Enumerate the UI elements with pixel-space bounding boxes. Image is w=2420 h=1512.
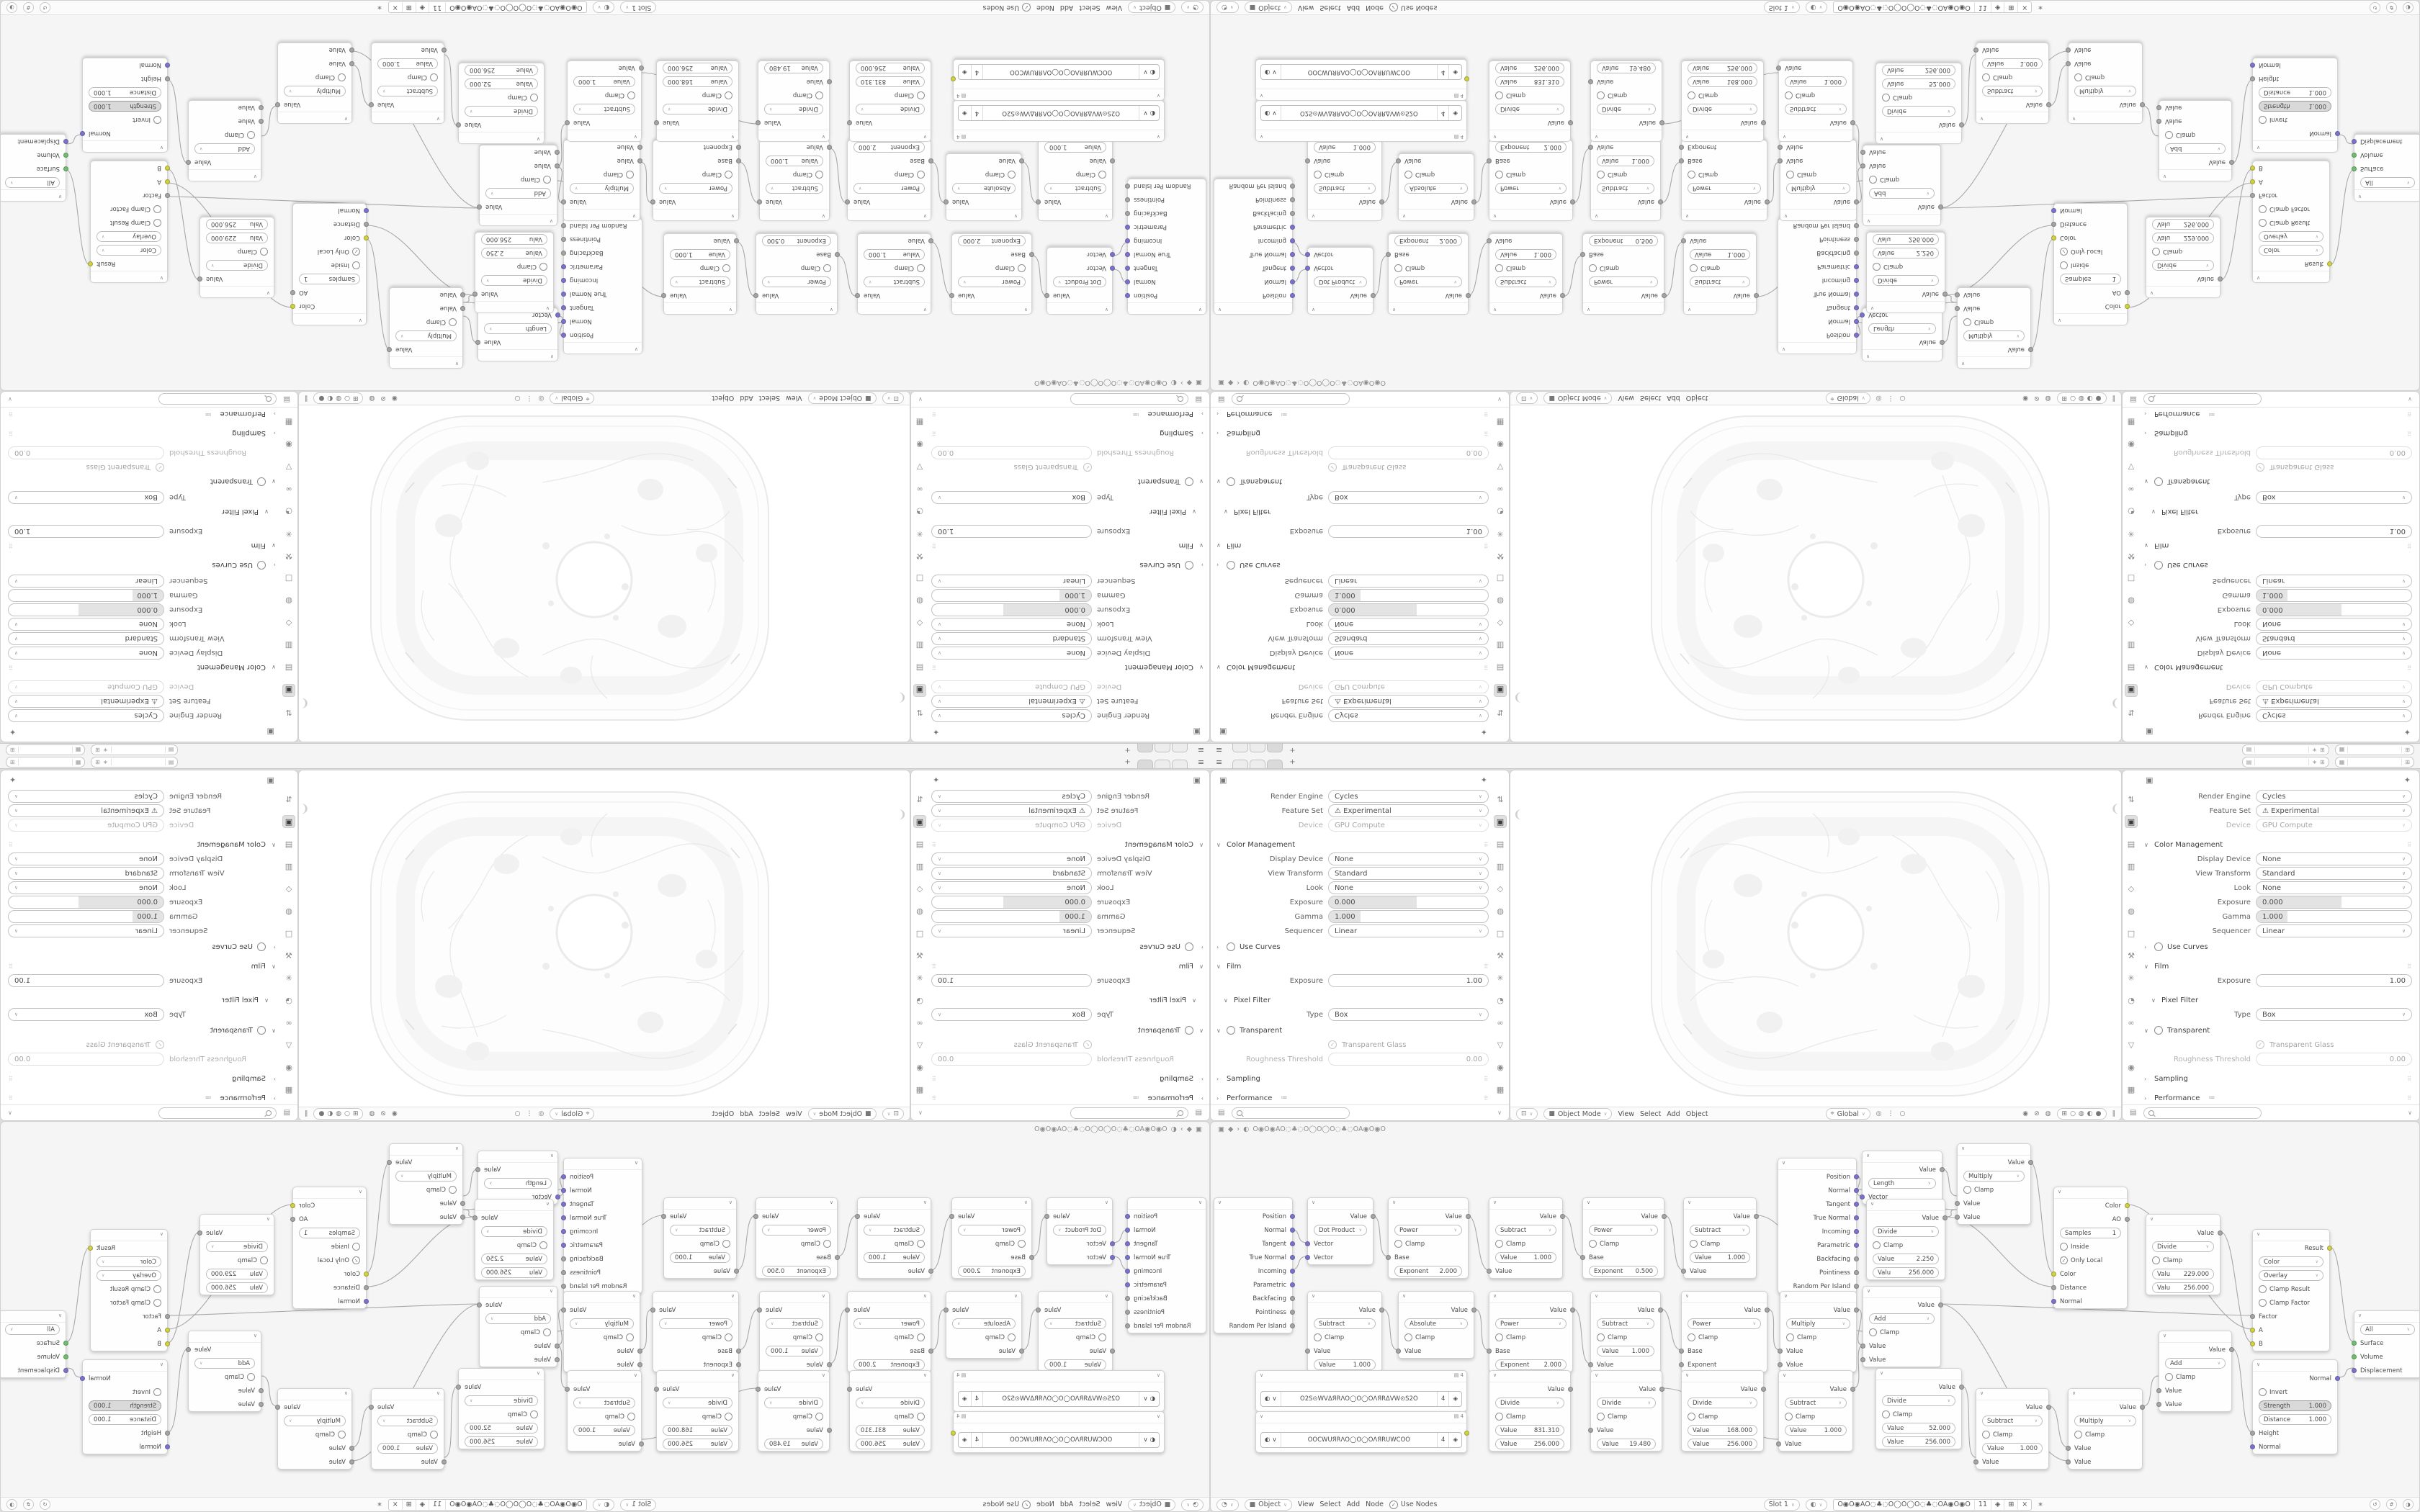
node[interactable]: ∨PositionNormalTangentTrue NormalIncomin… [1214, 179, 1293, 315]
operation-dropdown[interactable]: Absolute∨ [952, 1318, 1016, 1329]
operation-dropdown[interactable]: Multiply∨ [395, 330, 457, 341]
search-input[interactable] [1232, 1107, 1350, 1119]
prop-dropdown[interactable]: Cycles∨ [931, 709, 1092, 722]
input-socket[interactable] [165, 1341, 170, 1346]
value-field[interactable]: Value256.000 [663, 63, 732, 73]
output-socket[interactable] [1125, 1269, 1130, 1274]
workspace-tab[interactable] [1232, 744, 1248, 752]
toolbar-toggle-icon[interactable]: ❨ [897, 808, 907, 821]
input-socket[interactable] [827, 1428, 832, 1433]
output-socket[interactable] [1125, 279, 1130, 284]
operation-dropdown[interactable]: Subtract∨ [1690, 1225, 1750, 1236]
output-socket[interactable] [1854, 292, 1859, 297]
editor-type-icon[interactable]: ▤ [1196, 1109, 1202, 1117]
checkbox[interactable] [1882, 1410, 1890, 1418]
properties-tab-icon[interactable]: ▣ [1494, 816, 1506, 827]
gizmo-icon[interactable]: ◉ [2022, 395, 2028, 402]
prop-dropdown[interactable]: Linear∨ [8, 575, 164, 588]
viewport-canvas[interactable]: ❨ ❨ [299, 405, 910, 742]
node[interactable]: ∨ValueDivide∨ClampValueValue19.480 [758, 60, 830, 142]
material-datablock[interactable]: ◐∨O2S⊙WVΔЯRΛO◯O◯OΛЯRΔVW⊙S2O4◈ [958, 105, 1160, 121]
input-socket[interactable] [1487, 158, 1492, 163]
input-socket[interactable] [364, 1272, 369, 1277]
value-field[interactable]: Valu256.000 [206, 1282, 268, 1293]
output-socket[interactable] [1125, 1296, 1130, 1301]
output-socket[interactable] [1036, 199, 1041, 204]
material-datablock[interactable]: ◐∨O2S⊙WVΔЯRΛO◯O◯OΛЯRΔVW⊙S2O4◈ [1260, 105, 1462, 121]
value-field[interactable]: Value256.000 [663, 1439, 732, 1449]
prop-dropdown[interactable]: Standard∨ [931, 632, 1092, 645]
operation-dropdown[interactable]: Multiply∨ [284, 1416, 346, 1426]
operation-dropdown[interactable]: Overlay∨ [97, 1270, 161, 1281]
value-field[interactable]: Valu229.000 [206, 1269, 268, 1279]
output-socket[interactable] [1466, 293, 1471, 298]
input-socket[interactable] [63, 153, 68, 158]
pin-icon[interactable]: ✦ [2404, 775, 2411, 785]
node[interactable]: ∨ValueAdd∨ClampValueValue [188, 1331, 261, 1412]
checkbox[interactable] [1018, 1240, 1026, 1248]
properties-tab-icon[interactable]: ▣ [283, 685, 295, 696]
output-socket[interactable] [561, 237, 566, 242]
snap-options-icon[interactable]: ⋮ [526, 1110, 532, 1117]
checkbox[interactable] [153, 219, 161, 227]
checkbox[interactable] [626, 171, 634, 179]
input-socket[interactable] [1110, 1241, 1115, 1246]
input-socket[interactable] [1110, 1349, 1115, 1354]
checkbox[interactable] [260, 248, 268, 256]
operation-dropdown[interactable]: All∨ [2360, 1324, 2415, 1335]
toggle-use-curves[interactable]: ›Use Curves [931, 940, 1204, 954]
transform-orientation[interactable]: ⌖Global∨ [550, 1108, 594, 1120]
output-socket[interactable] [1854, 223, 1859, 228]
input-socket[interactable] [165, 166, 170, 171]
node[interactable]: ∨ValueSubtract∨ClampValue1.000Value [857, 233, 931, 315]
properties-tab-icon[interactable]: ◔ [914, 506, 926, 518]
checkbox[interactable] [815, 171, 823, 179]
output-socket[interactable] [1854, 1174, 1859, 1179]
value-field[interactable]: Value831.310 [1495, 76, 1564, 87]
checkbox[interactable] [917, 1413, 925, 1421]
output-socket[interactable] [88, 1246, 93, 1251]
section-sampling[interactable]: ›Sampling⠿ [1216, 1071, 1489, 1086]
value-field[interactable]: Value1.000 [1495, 249, 1556, 260]
properties-tab-icon[interactable]: ◔ [283, 506, 295, 518]
section-color-management[interactable]: ∨Color Management⠿ [1216, 660, 1489, 675]
menu-view[interactable]: View [1106, 1500, 1123, 1508]
node[interactable]: ∨ValuePower∨ClampBaseExponent [653, 140, 739, 221]
prop-dropdown[interactable]: Box∨ [2256, 491, 2412, 504]
output-socket[interactable] [1290, 1282, 1295, 1287]
input-socket[interactable] [555, 312, 560, 318]
input-socket[interactable] [165, 76, 170, 81]
menu-add[interactable]: Add [1347, 1500, 1360, 1508]
value-field[interactable]: Valu256.000 [1873, 1267, 1939, 1278]
checkbox[interactable] [626, 1333, 634, 1341]
properties-tab-icon[interactable]: ▽ [2125, 1039, 2137, 1050]
section-color-management[interactable]: ∨Color Management⠿ [2144, 660, 2412, 675]
output-socket[interactable] [561, 199, 566, 204]
node[interactable]: ∨ValueDivide∨ClampValueValue19.480 [1590, 1370, 1662, 1452]
properties-tab-icon[interactable]: ◍ [914, 905, 926, 917]
properties-tab-icon[interactable]: ◍ [914, 595, 926, 607]
prop-dropdown[interactable]: Box∨ [1328, 491, 1489, 504]
checkbox[interactable] [815, 1413, 823, 1421]
editor-type-icon[interactable]: ▤ [284, 395, 290, 403]
output-socket[interactable] [1940, 1167, 1945, 1172]
input-socket[interactable] [2051, 1299, 2056, 1304]
menu-object[interactable]: Object [1686, 395, 1708, 402]
chevron-down-icon[interactable]: ∨ [2408, 396, 2412, 402]
prop-dropdown[interactable]: Box∨ [1328, 1008, 1489, 1021]
checkbox[interactable] [153, 205, 161, 213]
output-socket[interactable] [845, 1308, 850, 1313]
output-socket[interactable] [290, 1217, 295, 1222]
prop-dropdown[interactable]: ⚠ Experimental∨ [1328, 695, 1489, 708]
output-socket[interactable] [561, 278, 566, 283]
checkbox[interactable] [2259, 219, 2267, 227]
output-socket[interactable] [80, 131, 85, 136]
value-field[interactable]: Valu256.000 [2152, 219, 2214, 230]
prop-value[interactable]: 0.00 [2256, 446, 2412, 459]
output-socket[interactable] [561, 1270, 566, 1275]
node[interactable]: ∨ValueSubtract∨ClampValue1.000Value [1976, 1388, 2049, 1470]
prop-slider[interactable]: 1.000 [2256, 910, 2412, 923]
chevron-down-icon[interactable]: ∨ [8, 1110, 12, 1116]
editor-type-button[interactable]: ◔∨ [1216, 2, 1239, 14]
chevron-down-icon[interactable]: ∨ [1497, 396, 1502, 402]
node[interactable]: ∨ValueSubtract∨ClampValue1.000Value [1976, 42, 2049, 124]
pause-render-icon[interactable]: ∥ [305, 395, 308, 402]
input-socket[interactable] [637, 1362, 642, 1367]
properties-tab-icon[interactable]: ✳ [283, 972, 295, 984]
shader-type-selector[interactable]: ■Object∨ [1128, 2, 1175, 14]
value-field[interactable]: Value1.000 [1785, 1425, 1847, 1436]
input-socket[interactable] [1588, 1362, 1593, 1367]
prop-dropdown[interactable]: Cycles∨ [931, 790, 1092, 803]
prop-dropdown[interactable]: Standard∨ [2256, 867, 2412, 880]
checkbox-transparent-glass[interactable]: ✓Transparent Glass [8, 1038, 276, 1052]
input-socket[interactable] [639, 66, 644, 71]
input-socket[interactable] [259, 1388, 264, 1393]
prop-dropdown[interactable]: None∨ [2256, 852, 2412, 865]
output-socket[interactable] [1125, 252, 1130, 257]
prop-value[interactable]: 0.00 [8, 1053, 164, 1066]
node-canvas[interactable]: ▣ ◆ › ◐ O◉O◉AO◌♣◌O◯O◯O◌♣◌OA◉O◉O ∨ValueLe… [1211, 1122, 2419, 1497]
output-socket[interactable] [1850, 1387, 1855, 1392]
add-workspace-button[interactable]: + [1289, 758, 1295, 766]
section-sampling[interactable]: ›Sampling⠿ [931, 1071, 1204, 1086]
menu-add[interactable]: Add [1060, 4, 1073, 12]
output-socket[interactable] [1854, 305, 1859, 310]
output-socket[interactable] [1765, 1308, 1770, 1313]
pin-icon[interactable]: ✦ [9, 775, 16, 785]
input-socket[interactable] [1973, 1459, 1978, 1464]
input-socket[interactable] [2250, 76, 2255, 81]
scene-name-field[interactable] [2254, 759, 2309, 765]
input-socket[interactable] [835, 252, 840, 257]
operation-dropdown[interactable]: Multiply∨ [570, 1318, 634, 1329]
node[interactable]: ∨ValueLength∨Vector [478, 307, 558, 361]
output-socket[interactable] [1379, 1308, 1384, 1313]
operation-dropdown[interactable]: Subtract∨ [1690, 276, 1750, 287]
properties-tab-icon[interactable]: ▣ [914, 816, 926, 827]
output-socket[interactable] [1568, 1387, 1573, 1392]
value-field[interactable]: Samples1 [299, 274, 360, 284]
output-socket[interactable] [1044, 293, 1049, 298]
checkbox[interactable] [1495, 1333, 1503, 1341]
input-socket[interactable] [165, 1314, 170, 1319]
checkbox[interactable] [1869, 176, 1877, 184]
value-field[interactable]: Value256.000 [856, 1439, 925, 1449]
checkbox[interactable] [1982, 73, 1990, 81]
value-field[interactable]: Value1.000 [766, 1346, 823, 1356]
node[interactable]: ∨PositionNormalTangentTrue NormalIncomin… [563, 1158, 642, 1294]
output-socket[interactable] [757, 199, 762, 204]
input-socket[interactable] [2156, 1402, 2161, 1407]
shader-type-selector[interactable]: ■Object∨ [1245, 1499, 1292, 1511]
output-socket[interactable] [1125, 1241, 1130, 1246]
prop-slider[interactable]: 1.000 [8, 589, 164, 602]
operation-dropdown[interactable]: Divide∨ [1495, 104, 1564, 114]
checkbox[interactable] [2060, 261, 2068, 269]
output-socket[interactable] [290, 290, 295, 295]
operation-dropdown[interactable]: Divide∨ [1873, 1226, 1939, 1237]
prop-value[interactable]: 1.00 [8, 974, 164, 987]
input-socket[interactable] [63, 1354, 68, 1359]
checkbox[interactable] [539, 263, 547, 271]
node[interactable]: ∨ValueAdd∨ClampValueValue [188, 100, 261, 181]
operation-dropdown[interactable]: Subtract∨ [1495, 276, 1556, 287]
checkbox[interactable] [530, 94, 538, 102]
node[interactable]: ∨ValueLength∨Vector [1862, 1151, 1942, 1205]
checkbox[interactable] [1786, 1333, 1794, 1341]
menu-select[interactable]: Select [1319, 4, 1340, 12]
output-socket[interactable] [1125, 1282, 1130, 1287]
node[interactable]: ∨ValueSubtract∨ClampValue1.000Value [857, 1197, 931, 1279]
checkbox[interactable] [247, 131, 255, 139]
value-field[interactable]: Value1.000 [670, 1252, 730, 1263]
fake-user-shield-icon[interactable]: ◈ [1448, 1433, 1461, 1447]
properties-tab-icon[interactable]: ▤ [1494, 662, 1506, 674]
output-socket[interactable] [1290, 293, 1295, 298]
output-socket[interactable] [369, 1405, 374, 1410]
prop-dropdown[interactable]: Box∨ [2256, 1008, 2412, 1021]
prop-value[interactable]: 1.00 [931, 525, 1092, 538]
input-socket[interactable] [63, 1368, 68, 1373]
value-field[interactable]: Value168.000 [1688, 1425, 1757, 1436]
output-socket[interactable] [2028, 1160, 2033, 1165]
pin-icon[interactable]: ✦ [1481, 775, 1487, 785]
properties-tab-icon[interactable]: ⇅ [283, 793, 295, 805]
copy-icon[interactable]: ⊞ [2405, 747, 2410, 753]
overlays-icon[interactable]: ⊘ [2034, 395, 2040, 402]
prop-dropdown[interactable]: None∨ [8, 647, 164, 660]
scene-selector[interactable]: ▤ ∗ ⊞ [2242, 744, 2329, 755]
pin-icon[interactable]: ∗ [2038, 1501, 2043, 1508]
checkbox[interactable] [1688, 1333, 1695, 1341]
node[interactable]: ∨ColorAOSamples1Inside✓Only LocalColorDi… [2053, 203, 2128, 325]
workspace-tab[interactable] [1267, 760, 1283, 768]
input-socket[interactable] [1588, 1428, 1593, 1433]
output-socket[interactable] [561, 1202, 566, 1207]
shader-node-editor[interactable]: ▣ ◆ › ◐ O◉O◉AO◌♣◌O◯O◯O◌♣◌OA◉O◉O ∨ValueLe… [1, 1122, 1209, 1511]
output-socket[interactable] [561, 1284, 566, 1289]
prop-value[interactable]: 1.00 [2256, 974, 2412, 987]
input-socket[interactable] [734, 1269, 739, 1274]
output-socket[interactable] [1290, 1323, 1295, 1328]
pin-icon[interactable]: ✦ [933, 728, 939, 737]
menu-view[interactable]: View [1618, 1110, 1634, 1118]
workspace-tab[interactable] [1172, 760, 1188, 768]
section-film[interactable]: ∨Film⠿ [8, 959, 276, 973]
output-socket[interactable] [561, 319, 566, 324]
checkbox[interactable] [2152, 248, 2160, 256]
prop-dropdown[interactable]: GPU Compute∨ [2256, 680, 2412, 693]
properties-tab-icon[interactable]: □ [283, 927, 295, 939]
value-field[interactable]: Value168.000 [663, 76, 732, 87]
section-performance[interactable]: ›Performance≔⠿ [1216, 1091, 1489, 1104]
input-socket[interactable] [1679, 158, 1684, 163]
operation-dropdown[interactable]: Divide∨ [481, 275, 547, 286]
operation-dropdown[interactable]: All∨ [2360, 177, 2415, 188]
properties-tab-icon[interactable]: ▦ [283, 417, 295, 428]
workspace-tab[interactable] [1155, 744, 1170, 752]
input-socket[interactable] [2250, 179, 2255, 184]
output-socket[interactable] [1854, 1229, 1859, 1234]
checkbox[interactable] [1404, 171, 1412, 179]
prop-slider[interactable]: 1.000 [931, 589, 1092, 602]
menu-add[interactable]: Add [1667, 395, 1680, 402]
output-socket[interactable] [1290, 266, 1295, 271]
value-field[interactable]: Value1.000 [377, 58, 438, 69]
node[interactable]: ∨ValueMultiply∨ClampValueValue [1957, 1143, 2031, 1225]
output-socket[interactable] [2335, 1376, 2340, 1381]
value-field[interactable]: Value1.000 [377, 1443, 438, 1454]
snap-options-icon[interactable]: ⋮ [1888, 395, 1894, 402]
toggle-transparent[interactable]: ∨Transparent [931, 474, 1204, 489]
operation-dropdown[interactable]: Multiply∨ [395, 1171, 457, 1182]
operation-dropdown[interactable]: Subtract∨ [670, 1225, 730, 1236]
checkbox[interactable] [352, 1243, 360, 1251]
node[interactable]: ∨ValueDivide∨ClampValu229.000Valu256.000 [2146, 217, 2220, 298]
viewport-3d[interactable]: ❨ ❨ ⊡∨ ■Object Mode∨ View Select Add Obj… [299, 770, 910, 1120]
properties-tab-icon[interactable]: ⇅ [2125, 793, 2137, 805]
properties-tab-icon[interactable]: ◔ [1494, 506, 1506, 518]
prop-dropdown[interactable]: ⚠ Experimental∨ [1328, 804, 1489, 817]
node[interactable]: ∨ValueMultiply∨ClampValueValue [277, 42, 352, 124]
input-socket[interactable] [1955, 292, 1960, 297]
value-field[interactable]: Value256.000 [1495, 1439, 1564, 1449]
input-socket[interactable] [1973, 48, 1978, 53]
shading-mode-buttons[interactable]: ⊞ ○ ◍ ◐ ● [2057, 392, 2107, 404]
input-socket[interactable] [1305, 1255, 1310, 1260]
section-sampling[interactable]: ›Sampling⠿ [1216, 426, 1489, 441]
input-socket[interactable] [1776, 1441, 1781, 1446]
input-socket[interactable] [1110, 1255, 1115, 1260]
input-socket[interactable] [2352, 153, 2357, 158]
operation-dropdown[interactable]: Subtract∨ [670, 276, 730, 287]
output-socket[interactable] [1290, 1310, 1295, 1315]
properties-tab-icon[interactable]: ∞ [1494, 1017, 1506, 1028]
output-socket[interactable] [1659, 120, 1664, 125]
prop-value[interactable]: 0.00 [1328, 446, 1489, 459]
prop-dropdown[interactable]: None∨ [931, 881, 1092, 894]
operation-dropdown[interactable]: Subtract∨ [1314, 1318, 1376, 1329]
prop-dropdown[interactable]: Linear∨ [2256, 924, 2412, 937]
section-sampling[interactable]: ›Sampling⠿ [931, 426, 1204, 441]
prop-slider[interactable]: 0.000 [2256, 896, 2412, 909]
checkbox[interactable] [2074, 1431, 2082, 1439]
slot-selector[interactable]: Slot 1∨ [1764, 2, 1800, 14]
checkbox[interactable] [1690, 1240, 1698, 1248]
value-field[interactable]: Value2.250 [1873, 248, 1939, 258]
value-field[interactable]: Value1.000 [1314, 142, 1376, 153]
input-socket[interactable] [1860, 1357, 1865, 1362]
output-socket[interactable] [1850, 120, 1855, 125]
material-datablock[interactable]: ◐∨OOCWUЯRΛO◯O◯OΛЯRUWCOO4◈ [958, 1432, 1160, 1448]
chevron-down-icon[interactable]: ∨ [918, 396, 923, 402]
input-socket[interactable] [2352, 139, 2357, 144]
input-socket[interactable] [555, 1344, 560, 1349]
operation-dropdown[interactable]: Color∨ [2259, 245, 2323, 256]
output-socket[interactable] [2327, 261, 2332, 266]
properties-tab-icon[interactable]: ⇅ [914, 707, 926, 719]
output-socket[interactable] [475, 1167, 480, 1172]
input-socket[interactable] [2250, 193, 2255, 198]
node[interactable]: ∨ValueMultiply∨ClampValueValue [563, 1291, 640, 1372]
search-input[interactable] [2143, 394, 2262, 405]
operation-dropdown[interactable]: Divide∨ [2152, 1241, 2214, 1252]
output-socket[interactable] [88, 261, 93, 266]
value-field[interactable]: Valu256.000 [1873, 234, 1939, 245]
properties-tab-icon[interactable]: ▤ [283, 838, 295, 850]
output-socket[interactable] [1754, 1214, 1759, 1219]
output-socket[interactable] [477, 204, 482, 210]
value-field[interactable]: Distance1.000 [2259, 1414, 2331, 1425]
checkbox[interactable] [1495, 264, 1503, 272]
checkbox[interactable] [2259, 205, 2267, 213]
output-socket[interactable] [1125, 1310, 1130, 1315]
xray-icon[interactable]: ◍ [369, 395, 375, 402]
pin-icon[interactable]: ✦ [2404, 728, 2411, 737]
properties-tab-icon[interactable]: ◇ [283, 618, 295, 629]
use-nodes-checkbox[interactable]: ✓Use Nodes [1389, 4, 1438, 12]
toolbar-toggle-icon[interactable]: ❨ [897, 691, 907, 704]
node[interactable]: ∨ValuePower∨ClampBaseExponent0.500 [1582, 1197, 1664, 1279]
prop-dropdown[interactable]: Box∨ [931, 1008, 1092, 1021]
output-socket[interactable] [661, 293, 666, 298]
value-field[interactable]: Value52.000 [465, 78, 538, 89]
operation-dropdown[interactable]: Power∨ [659, 1318, 732, 1329]
properties-tab-icon[interactable]: ▦ [2125, 1084, 2137, 1095]
list-icon[interactable]: ≔ [1133, 410, 1139, 418]
node[interactable]: ∨ValueAbsolute∨ClampValue [946, 1291, 1022, 1359]
node[interactable]: ∨ValueSubtract∨ClampValue1.000Value [663, 1197, 737, 1279]
input-socket[interactable] [1955, 306, 1960, 311]
toggle-transparent[interactable]: ∨Transparent [2144, 1023, 2412, 1038]
value-field[interactable]: Value52.000 [1882, 1423, 1955, 1434]
checkbox[interactable] [815, 1333, 823, 1341]
output-socket[interactable] [1942, 1215, 1948, 1220]
operation-dropdown[interactable]: Subtract∨ [766, 1318, 823, 1329]
properties-tab-icon[interactable]: ◉ [2125, 439, 2137, 451]
output-socket[interactable] [197, 276, 202, 282]
properties-tab-icon[interactable]: ▥ [283, 640, 295, 652]
output-socket[interactable] [1570, 1308, 1575, 1313]
properties-tab-icon[interactable]: ⚒ [1494, 950, 1506, 961]
properties-tab-icon[interactable]: ⇅ [914, 793, 926, 805]
checkbox[interactable] [1314, 171, 1322, 179]
